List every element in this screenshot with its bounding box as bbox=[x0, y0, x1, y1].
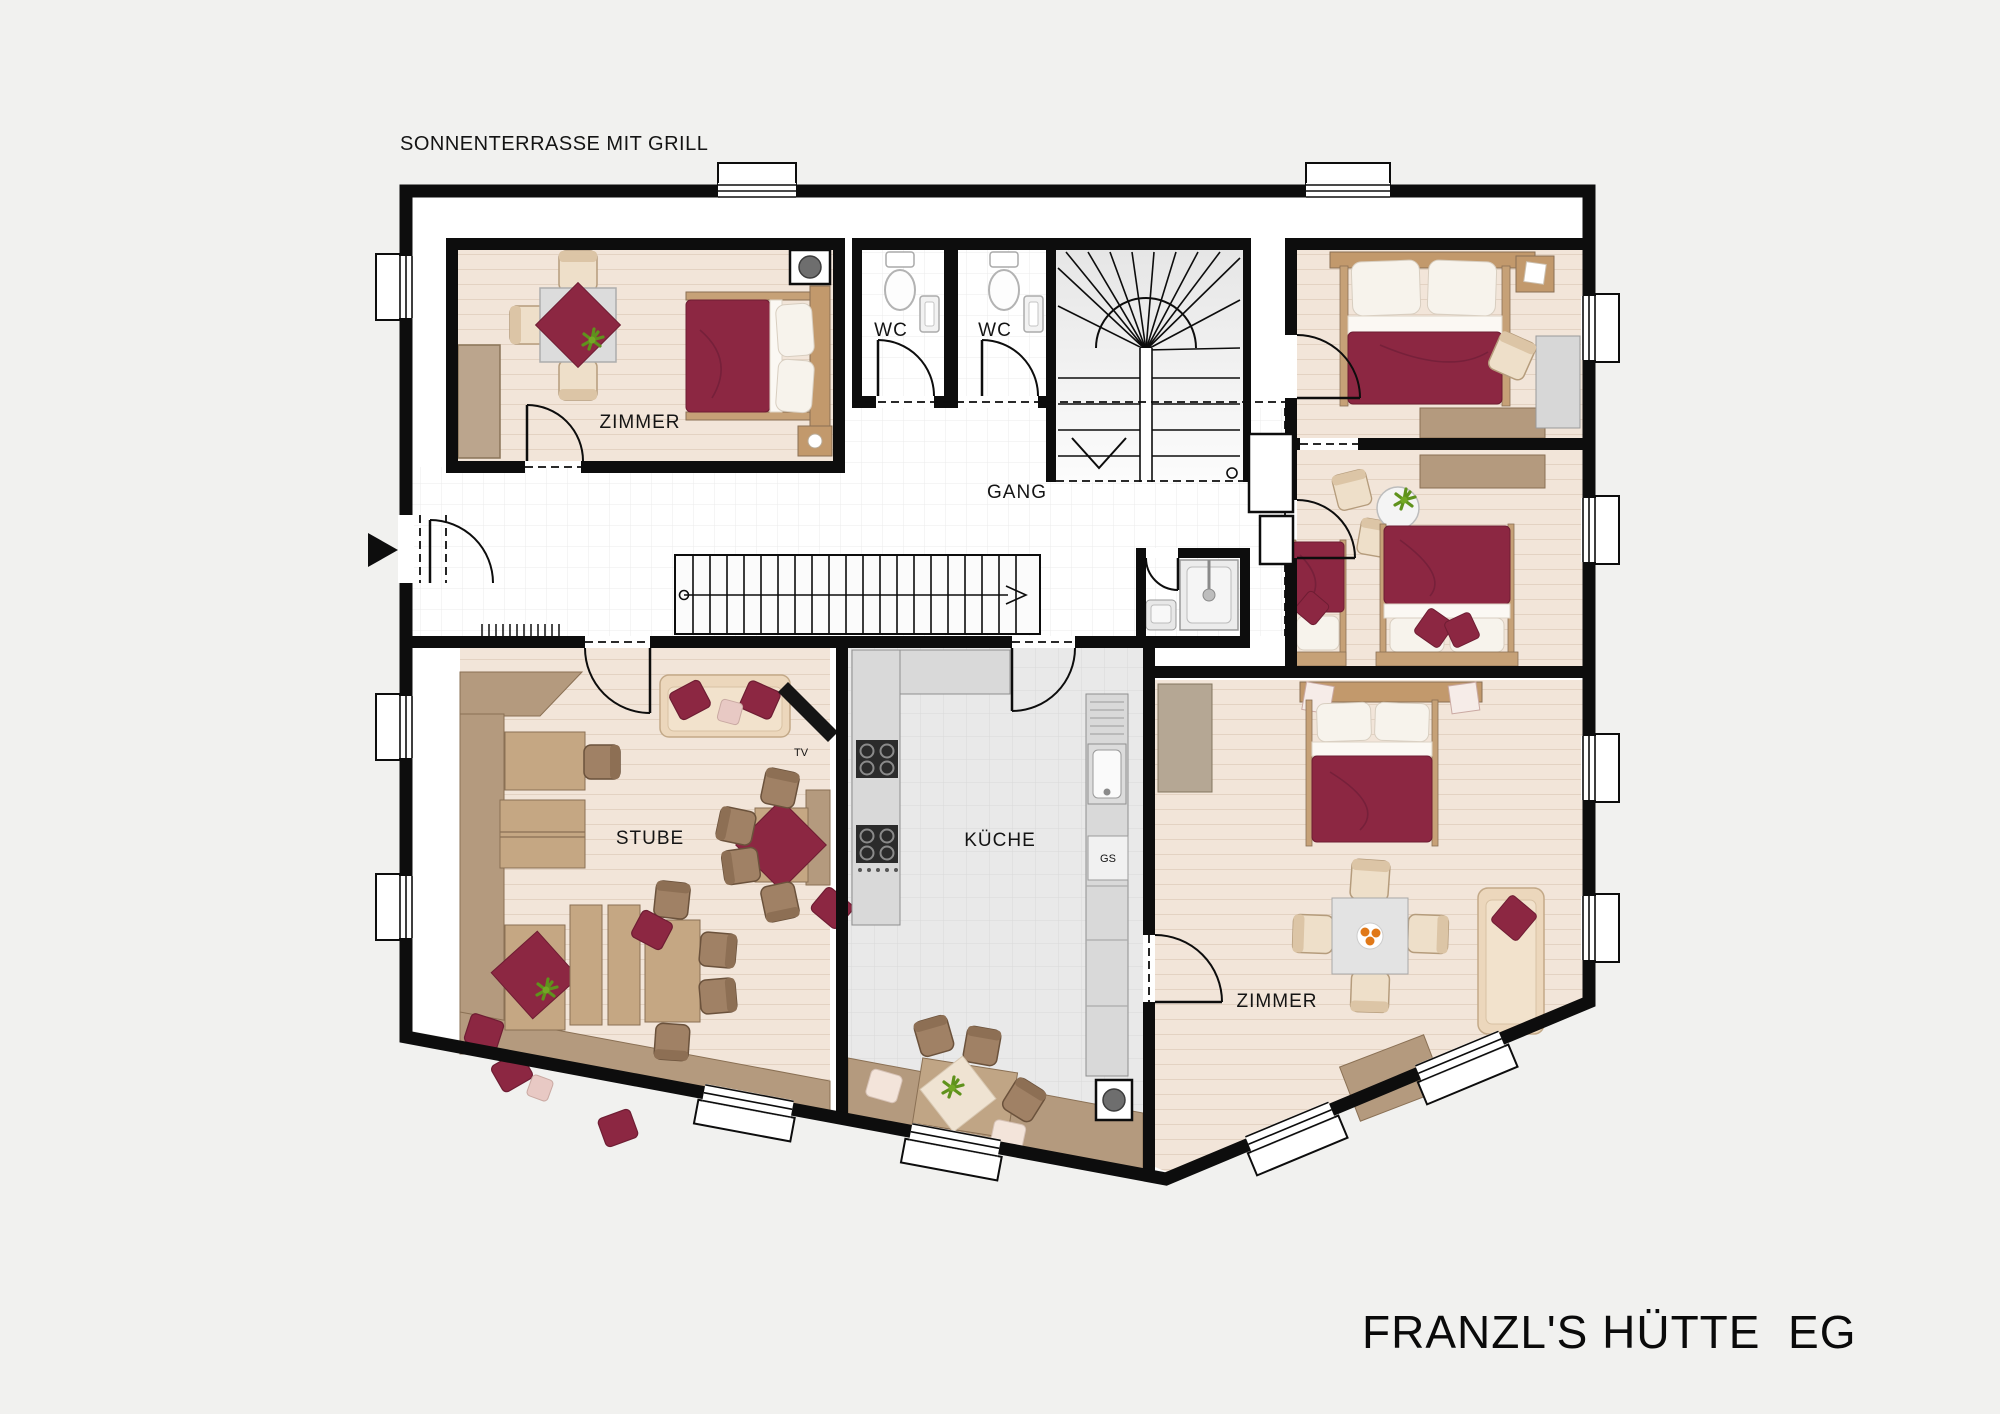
counter-left bbox=[852, 650, 900, 925]
straight-staircase bbox=[675, 555, 1040, 634]
plan-title: FRANZL'S HÜTTE EG bbox=[1362, 1306, 1857, 1358]
round-table bbox=[1377, 487, 1419, 529]
room-label-bedroom-bottom-right: ZIMMER bbox=[1237, 991, 1318, 1012]
room-label-living: STUBE bbox=[616, 828, 684, 849]
cooktop-icon bbox=[856, 740, 898, 778]
window bbox=[376, 874, 414, 940]
desk bbox=[1536, 336, 1580, 428]
bench-dresser bbox=[1420, 408, 1545, 438]
stair-center-post bbox=[1140, 348, 1152, 482]
table bbox=[500, 800, 585, 868]
table bbox=[570, 905, 602, 1025]
window bbox=[1581, 734, 1619, 802]
table bbox=[505, 732, 585, 790]
window bbox=[1306, 163, 1390, 199]
dishwasher: GS bbox=[1088, 836, 1128, 880]
wall-pier bbox=[1260, 516, 1293, 564]
toilet-icon bbox=[885, 270, 915, 310]
window bbox=[718, 163, 796, 199]
nightstand bbox=[798, 426, 832, 456]
tv-label: TV bbox=[794, 747, 809, 759]
table bbox=[608, 905, 640, 1025]
oven-icon bbox=[1103, 1089, 1125, 1111]
stove-niche bbox=[790, 250, 830, 284]
room-label-bedroom-top-left: ZIMMER bbox=[600, 412, 681, 433]
kitchen-sink bbox=[1088, 744, 1126, 804]
window bbox=[1581, 294, 1619, 362]
bench-dresser bbox=[1420, 455, 1545, 488]
oven-niche bbox=[1096, 1080, 1132, 1120]
floor-plan-page: SONNENTERRASSE MIT GRILL bbox=[0, 0, 2000, 1414]
wardrobe bbox=[1158, 684, 1212, 792]
corner-bench bbox=[460, 714, 504, 1054]
double-bed bbox=[1330, 252, 1535, 406]
terrace-label: SONNENTERRASSE MIT GRILL bbox=[400, 133, 708, 155]
window bbox=[376, 694, 414, 760]
sofa bbox=[1478, 888, 1544, 1034]
stove-icon bbox=[799, 256, 821, 278]
toilet-icon bbox=[989, 270, 1019, 310]
wardrobe bbox=[458, 345, 500, 458]
window bbox=[376, 254, 414, 320]
room-label-wc-right: WC bbox=[978, 320, 1012, 341]
floor-plan-drawing: SONNENTERRASSE MIT GRILL bbox=[0, 0, 2000, 1414]
wall-pier bbox=[1249, 434, 1293, 512]
nightstand bbox=[1516, 256, 1554, 292]
room-label-wc-left: WC bbox=[874, 320, 908, 341]
sofa bbox=[660, 675, 790, 737]
shower-drain-icon bbox=[1203, 589, 1215, 601]
room-label-hallway: GANG bbox=[987, 482, 1047, 503]
window bbox=[1581, 894, 1619, 962]
window bbox=[1581, 496, 1619, 564]
dishwasher-label: GS bbox=[1100, 853, 1116, 865]
room-label-kitchen: KÜCHE bbox=[964, 830, 1036, 851]
